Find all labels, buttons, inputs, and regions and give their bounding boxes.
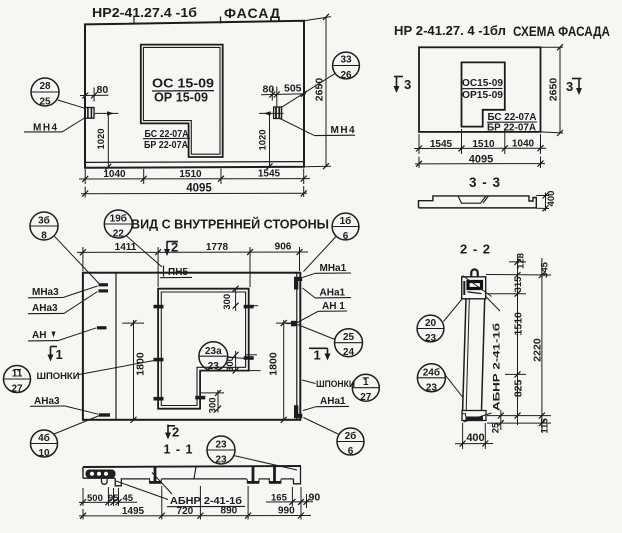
svg-text:3б: 3б <box>38 215 50 227</box>
svg-text:МНа3: МНа3 <box>32 287 59 298</box>
svg-text:2650: 2650 <box>547 78 559 102</box>
svg-text:1510: 1510 <box>472 139 495 150</box>
svg-text:300: 300 <box>222 294 233 310</box>
svg-text:23: 23 <box>215 455 227 466</box>
svg-text:БР 22-07А: БР 22-07А <box>487 122 536 133</box>
svg-text:ШПОНКИ: ШПОНКИ <box>37 371 80 382</box>
svg-text:МНа1: МНа1 <box>320 263 347 274</box>
svg-text:80: 80 <box>97 84 109 96</box>
svg-text:400: 400 <box>546 191 557 207</box>
svg-text:ОР 15-09: ОР 15-09 <box>154 91 208 105</box>
svg-text:АН 1: АН 1 <box>322 301 345 312</box>
svg-text:АНа1: АНа1 <box>320 288 346 299</box>
svg-text:1495: 1495 <box>122 506 145 517</box>
svg-text:22: 22 <box>113 229 125 240</box>
svg-text:400: 400 <box>466 432 484 444</box>
svg-text:1040: 1040 <box>512 139 535 150</box>
svg-text:АНа1: АНа1 <box>320 396 346 407</box>
svg-text:СХЕМА ФАСАДА: СХЕМА ФАСАДА <box>513 24 610 39</box>
svg-text:6: 6 <box>348 446 354 457</box>
svg-text:1411: 1411 <box>115 242 137 253</box>
svg-text:ШПОНКИ: ШПОНКИ <box>316 379 355 390</box>
svg-text:720: 720 <box>177 506 194 517</box>
svg-text:1510: 1510 <box>512 312 524 336</box>
svg-text:1800: 1800 <box>267 352 279 376</box>
svg-text:1: 1 <box>56 347 63 362</box>
svg-text:3: 3 <box>566 79 573 94</box>
svg-text:НР 2-41.27. 4 -1бл: НР 2-41.27. 4 -1бл <box>394 23 506 38</box>
svg-text:3: 3 <box>404 77 411 92</box>
svg-text:1020: 1020 <box>96 129 107 150</box>
svg-text:1545: 1545 <box>258 169 281 180</box>
svg-text:АБНР 2-41-1б: АБНР 2-41-1б <box>491 322 501 411</box>
svg-text:1: 1 <box>314 348 321 363</box>
svg-text:8: 8 <box>41 231 47 242</box>
svg-text:4095: 4095 <box>186 183 212 195</box>
svg-text:2: 2 <box>172 425 179 440</box>
svg-text:3 - 3: 3 - 3 <box>469 175 501 190</box>
svg-text:906: 906 <box>275 242 292 253</box>
svg-text:1 - 1: 1 - 1 <box>163 443 193 457</box>
svg-text:80: 80 <box>263 84 275 96</box>
svg-text:26: 26 <box>340 70 352 81</box>
svg-text:300: 300 <box>225 356 236 372</box>
svg-text:825: 825 <box>512 379 524 397</box>
svg-text:165: 165 <box>271 493 288 504</box>
svg-text:ФАСАД: ФАСАД <box>224 5 281 21</box>
svg-text:ОС 15-09: ОС 15-09 <box>152 77 214 91</box>
svg-text:315: 315 <box>513 276 524 293</box>
svg-text:45: 45 <box>123 493 134 504</box>
svg-text:23: 23 <box>426 382 438 393</box>
svg-text:1: 1 <box>363 377 369 388</box>
svg-text:500: 500 <box>87 493 103 504</box>
svg-text:1020: 1020 <box>258 130 269 151</box>
svg-text:23а: 23а <box>205 346 222 357</box>
svg-text:ОР15-09: ОР15-09 <box>462 90 503 101</box>
svg-text:АНа3: АНа3 <box>34 396 60 407</box>
svg-text:28: 28 <box>39 81 51 92</box>
svg-text:ВИД С ВНУТРЕННЕЙ СТОРОНЫ: ВИД С ВНУТРЕННЕЙ СТОРОНЫ <box>131 217 329 232</box>
svg-text:990: 990 <box>278 506 295 517</box>
svg-text:505: 505 <box>284 83 302 95</box>
svg-text:2: 2 <box>171 240 178 255</box>
svg-text:АНа3: АНа3 <box>32 303 58 314</box>
svg-text:345: 345 <box>540 261 551 278</box>
svg-text:300: 300 <box>208 397 219 413</box>
svg-text:4095: 4095 <box>469 153 493 165</box>
svg-text:25: 25 <box>491 422 502 433</box>
svg-text:90: 90 <box>309 492 321 504</box>
svg-text:115: 115 <box>540 418 551 434</box>
svg-text:25: 25 <box>343 332 355 343</box>
svg-text:24: 24 <box>343 347 355 358</box>
svg-text:23: 23 <box>208 361 220 372</box>
svg-text:10: 10 <box>38 448 50 459</box>
svg-text:11: 11 <box>12 369 23 380</box>
svg-text:1б: 1б <box>340 215 352 227</box>
svg-text:20: 20 <box>425 318 437 329</box>
svg-text:19б: 19б <box>110 213 127 225</box>
svg-text:24б: 24б <box>423 366 440 378</box>
svg-text:25: 25 <box>39 97 51 108</box>
svg-text:4б: 4б <box>38 432 50 444</box>
svg-text:890: 890 <box>221 506 238 517</box>
svg-text:1778: 1778 <box>206 242 229 253</box>
svg-text:6: 6 <box>343 231 349 242</box>
svg-text:2220: 2220 <box>531 338 543 362</box>
svg-text:АН: АН <box>32 330 46 341</box>
svg-text:БР 22-07А: БР 22-07А <box>144 140 188 151</box>
svg-text:2б: 2б <box>345 430 357 442</box>
svg-text:1040: 1040 <box>103 169 126 180</box>
svg-text:НР2-41.27.4 -1б: НР2-41.27.4 -1б <box>92 5 197 20</box>
svg-text:ОС15-09: ОС15-09 <box>462 78 503 89</box>
svg-text:1510: 1510 <box>179 169 202 180</box>
svg-text:33: 33 <box>340 55 352 66</box>
svg-text:27: 27 <box>360 392 372 403</box>
svg-text:27: 27 <box>11 384 23 395</box>
svg-text:МН4: МН4 <box>331 125 357 136</box>
svg-text:2 - 2: 2 - 2 <box>460 242 491 257</box>
svg-text:23: 23 <box>425 333 437 344</box>
svg-text:23: 23 <box>215 440 227 451</box>
svg-text:1545: 1545 <box>430 139 453 150</box>
svg-text:128: 128 <box>516 253 527 269</box>
svg-text:95: 95 <box>108 493 119 504</box>
